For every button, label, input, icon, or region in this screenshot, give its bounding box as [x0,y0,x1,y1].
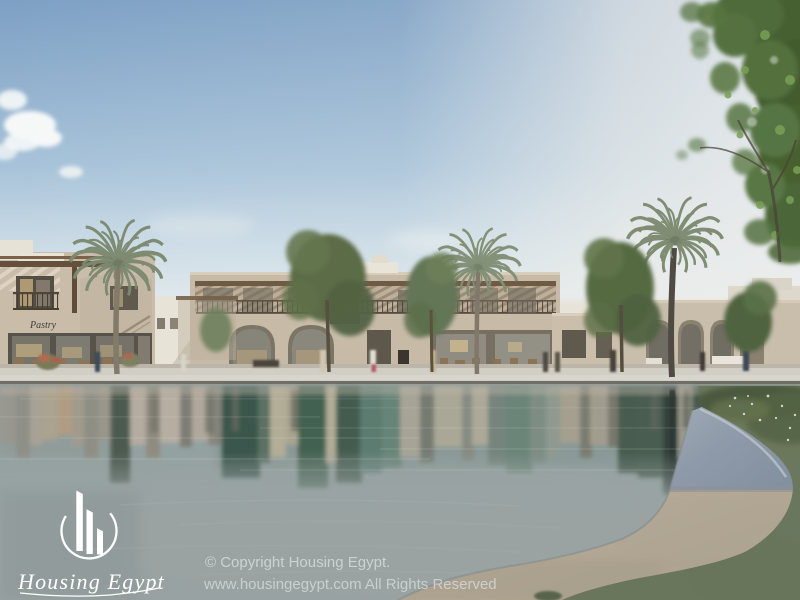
svg-text:www.housingegypt.com All Right: www.housingegypt.com All Rights Reserved [203,576,497,593]
svg-text:Housing Egypt: Housing Egypt [17,569,165,594]
svg-text:© Copyright Housing Egypt.: © Copyright Housing Egypt. [205,554,390,571]
svg-text:Pastry: Pastry [29,320,57,331]
